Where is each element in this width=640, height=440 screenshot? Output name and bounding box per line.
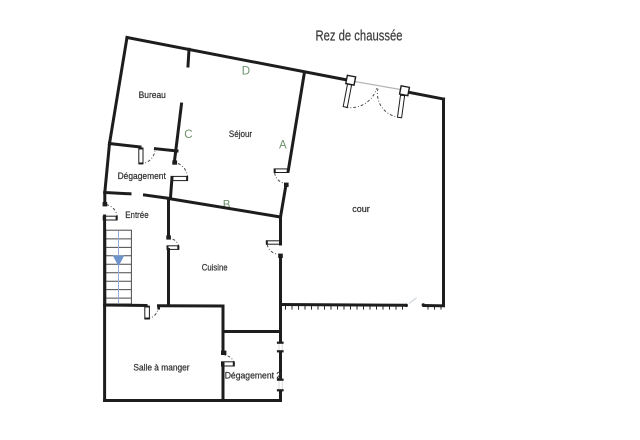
svg-text:Entrée: Entrée (125, 210, 149, 221)
svg-text:cour: cour (352, 204, 370, 215)
svg-text:A: A (279, 139, 287, 151)
svg-text:Cuisine: Cuisine (202, 262, 228, 273)
svg-text:D: D (242, 66, 250, 78)
svg-text:C: C (184, 129, 192, 141)
svg-text:Rez de chaussée: Rez de chaussée (316, 28, 403, 44)
svg-text:Séjour: Séjour (229, 129, 252, 140)
svg-text:Dégagement 2: Dégagement 2 (225, 371, 282, 382)
svg-text:Bureau: Bureau (139, 90, 166, 101)
svg-text:Salle à manger: Salle à manger (133, 362, 189, 373)
svg-text:Dégagement: Dégagement (118, 171, 167, 182)
